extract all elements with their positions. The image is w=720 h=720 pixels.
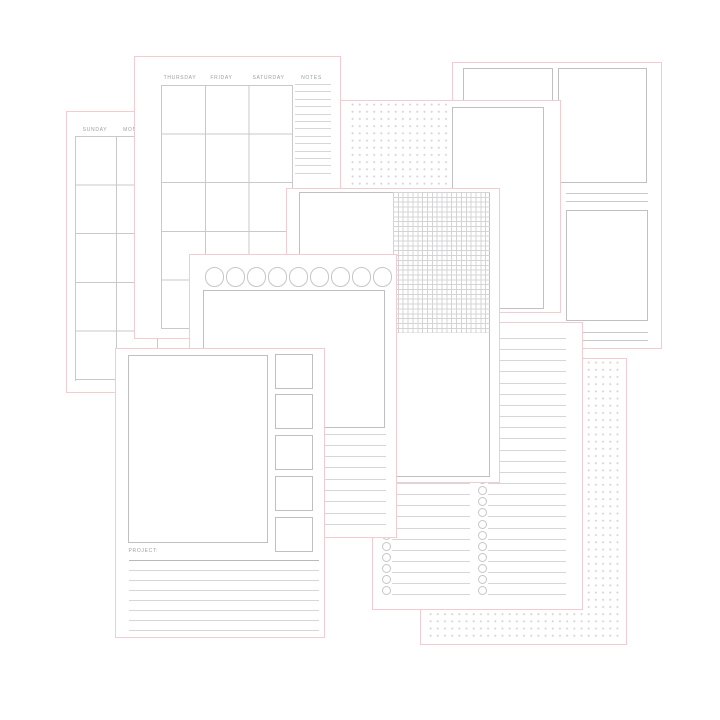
- checklist-line: [392, 528, 470, 529]
- decorative-circle: [205, 267, 225, 287]
- checkbox-circle: [382, 553, 391, 562]
- checkbox-circle: [478, 542, 487, 551]
- rule-line: [295, 143, 331, 144]
- checkbox-circle: [478, 531, 487, 540]
- content-box: [558, 68, 647, 183]
- checkbox-circle: [382, 542, 391, 551]
- checklist-line: [392, 505, 470, 506]
- checkbox-circle: [382, 564, 391, 573]
- checklist-line: [488, 494, 566, 495]
- checklist-line: [392, 516, 470, 517]
- planner-pages-mockup: SUNDAY MONDAY THURSDAY FRIDAY SATURDAY N…: [0, 0, 720, 720]
- rule-line: [129, 590, 319, 591]
- rule-line: [129, 570, 319, 571]
- checklist-line: [392, 539, 470, 540]
- checklist-line: [392, 483, 470, 484]
- project-label: PROJECT:: [129, 548, 159, 554]
- rule-line: [129, 610, 319, 611]
- day-header-sunday: SUNDAY: [75, 127, 116, 133]
- day-header-thursday: THURSDAY: [159, 75, 202, 81]
- rule-line: [295, 121, 331, 122]
- decorative-circle: [310, 267, 330, 287]
- rule-line: [129, 620, 319, 621]
- side-box: [275, 517, 313, 552]
- decorative-circle: [268, 267, 288, 287]
- rule-line: [295, 106, 331, 107]
- content-box: [566, 210, 648, 321]
- rule-line: [566, 193, 648, 194]
- rule-line: [295, 84, 331, 85]
- side-box: [275, 476, 313, 511]
- main-content-box: [128, 355, 268, 543]
- day-header-saturday: SATURDAY: [247, 75, 291, 81]
- rule-line: [129, 600, 319, 601]
- checklist-line: [488, 583, 566, 584]
- rule-line: [295, 151, 331, 152]
- rule-line: [295, 173, 331, 174]
- decorative-circle: [373, 267, 393, 287]
- checklist-line: [392, 583, 470, 584]
- notes-header: NOTES: [290, 75, 334, 81]
- decorative-circle: [247, 267, 267, 287]
- checkbox-circle: [478, 586, 487, 595]
- checklist-line: [488, 516, 566, 517]
- checklist-line: [392, 550, 470, 551]
- checkbox-circle: [382, 575, 391, 584]
- checklist-line: [488, 528, 566, 529]
- decorative-circle: [289, 267, 309, 287]
- rule-line: [129, 580, 319, 581]
- rule-line: [295, 158, 331, 159]
- decorative-circle: [352, 267, 372, 287]
- sheet-project: PROJECT:: [115, 348, 325, 638]
- checkbox-circle: [478, 508, 487, 517]
- side-box: [275, 435, 313, 470]
- checkbox-circle: [382, 586, 391, 595]
- checkbox-circle: [478, 520, 487, 529]
- checklist-line: [392, 572, 470, 573]
- rule-line: [129, 630, 319, 631]
- dot-grid: [349, 101, 450, 186]
- decorative-circle: [226, 267, 246, 287]
- rule-line: [295, 165, 331, 166]
- checklist-line: [488, 483, 566, 484]
- day-header-friday: FRIDAY: [200, 75, 244, 81]
- checklist-line: [488, 505, 566, 506]
- decorative-circle: [331, 267, 351, 287]
- rule-line: [566, 201, 648, 202]
- checkbox-circle: [478, 497, 487, 506]
- side-box: [275, 394, 313, 429]
- checklist-line: [488, 572, 566, 573]
- checklist-line: [488, 539, 566, 540]
- rule-line: [295, 99, 331, 100]
- rule-line: [295, 114, 331, 115]
- checkbox-circle: [478, 564, 487, 573]
- checklist-line: [488, 594, 566, 595]
- side-box: [275, 354, 313, 389]
- checklist-line: [392, 594, 470, 595]
- checklist-line: [392, 494, 470, 495]
- graph-grid: [393, 192, 490, 334]
- checkbox-circle: [478, 486, 487, 495]
- checklist-line: [488, 561, 566, 562]
- checkbox-circle: [478, 553, 487, 562]
- checkbox-circle: [478, 575, 487, 584]
- rule-line: [295, 91, 331, 92]
- rule-line: [295, 128, 331, 129]
- checklist-line: [488, 550, 566, 551]
- rule-line: [295, 136, 331, 137]
- checklist-line: [392, 561, 470, 562]
- project-header-line: [129, 560, 319, 561]
